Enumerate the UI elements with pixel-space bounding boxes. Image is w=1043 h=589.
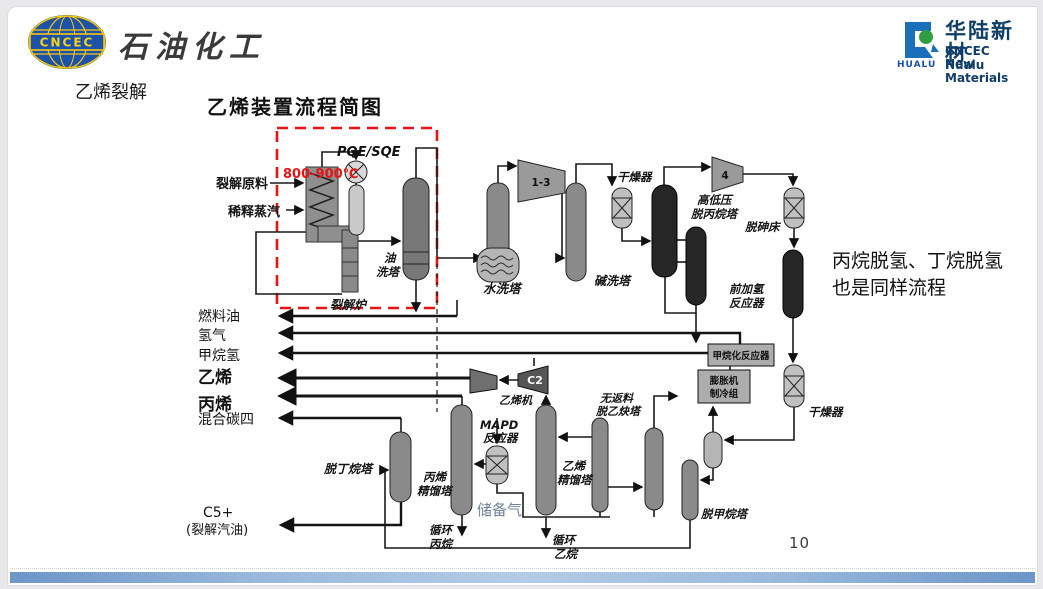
compressor-4: 4 [712,157,743,192]
label-dilution-steam: 稀释蒸汽 [228,204,280,220]
label-pqe-sqe: PQE/SQE [337,145,401,160]
ethylene-compressor [470,369,497,393]
label-front-hydro-line1: 前加氢 [729,282,765,296]
label-feed-cracking: 裂解原料 [215,176,268,192]
app-canvas: CNCEC 石油化工 HUALU 华陆新材 CNCEC Hualu New Ma… [0,0,1043,589]
label-recycle-propane-line2: 丙烷 [429,537,454,551]
label-ethylene-product: 乙烯 [198,367,232,388]
label-propylene-fractionator-line2: 精馏塔 [417,484,454,498]
expander-label-line1: 膨胀机 [709,375,739,387]
label-mapd-line2: 反应器 [483,431,519,445]
label-storage-gas: 储备气 [477,501,522,519]
label-water-wash-tower: 水洗塔 [483,281,523,296]
debutanizer-column [390,432,411,502]
ethylene-fractionator-column [536,405,556,515]
dryer-1 [612,188,632,228]
label-hydrogen: 氢气 [198,328,226,344]
water-wash-tower [477,183,519,282]
demethanizer-column [682,460,698,520]
cracked-gas-compressor-1-3: 1-3 [518,160,565,202]
label-furnace-temperature: 800-900℃ [283,167,358,182]
label-caustic-wash-tower: 碱洗塔 [594,274,632,288]
label-oil-wash-line1: 油 [384,251,397,265]
process-flow-diagram: 1-3 4 [0,0,1043,589]
label-c5-plus: C5+ [203,505,233,521]
front-hydrogenation-reactor [783,250,803,318]
label-pyrolysis-gasoline: (裂解汽油) [186,523,248,538]
label-ethylene-fractionator-line1: 乙烯 [562,459,587,473]
label-mapd-line1: MAPD [480,418,519,432]
methanation-reactor: 甲烷化反应器 [708,344,774,366]
label-recycle-ethane-line1: 循环 [552,533,577,547]
label-mixed-c4: 混合碳四 [198,412,254,428]
label-methane-hydrogen: 甲烷氢 [198,348,240,364]
expander-label-line2: 制冷组 [710,388,739,400]
label-dryer-1: 干燥器 [617,170,653,184]
label-recycle-ethane-line2: 乙烷 [554,547,579,561]
label-oil-wash-line2: 洗塔 [376,265,401,279]
label-fuel-oil: 燃料油 [198,308,240,325]
label-deacetylene-line2: 脱乙炔塔 [595,405,642,418]
compressor-4-label: 4 [721,170,728,182]
quench-drum [349,185,364,235]
mapd-reactor [486,446,508,484]
feed-chilling-drum [704,432,722,468]
oil-wash-tower [403,178,429,280]
label-front-hydro-line2: 反应器 [729,296,765,310]
deacetylene-column [592,418,608,512]
caustic-wash-tower [566,183,586,281]
label-ethylene-compressor: 乙烯机 [499,394,533,407]
dryer-2 [784,365,804,407]
label-depropanizer-line2: 脱丙烷塔 [690,207,739,221]
label-debutanizer: 脱丁烷塔 [323,462,374,476]
c2-compressor-label: C2 [527,374,543,387]
methanation-reactor-label: 甲烷化反应器 [712,350,770,362]
propylene-fractionator-column [451,405,472,515]
arsenic-removal-bed [784,188,804,228]
label-arsenic-bed: 脱砷床 [744,220,782,234]
label-dryer-2: 干燥器 [808,405,844,419]
label-propylene-fractionator-line1: 丙烯 [423,470,448,484]
compressor-1-3-label: 1-3 [532,177,551,189]
label-deacetylene-line1: 无返料 [599,392,634,405]
deethanizer-column [645,428,663,510]
label-recycle-propane-line1: 循环 [429,523,454,537]
expander-refrigeration-unit: 膨胀机 制冷组 [698,370,750,403]
label-cracking-furnace: 裂解炉 [330,298,368,312]
label-ethylene-fractionator-line2: 精馏塔 [557,473,594,487]
c2-compressor: C2 [518,366,548,394]
label-demethanizer: 脱甲烷塔 [700,507,749,521]
label-depropanizer-line1: 高低压 [697,193,734,207]
